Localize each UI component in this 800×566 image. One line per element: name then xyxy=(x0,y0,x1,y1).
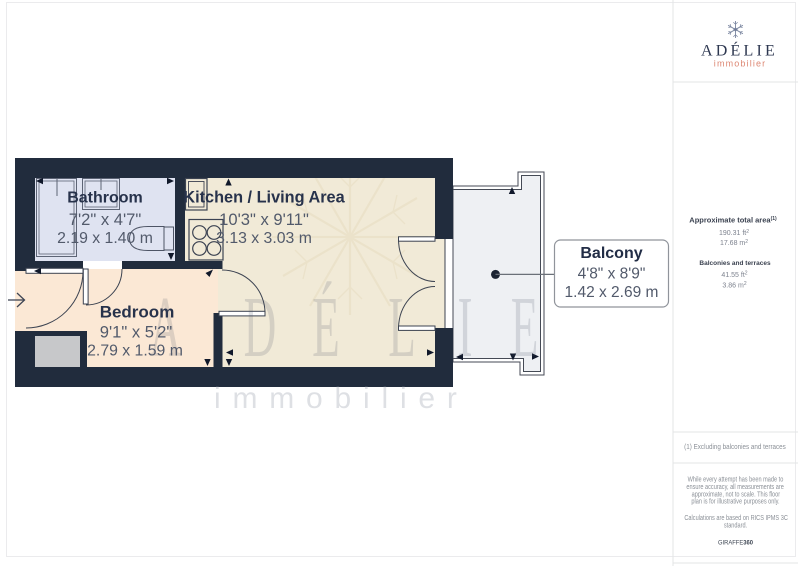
svg-text:Kitchen / Living Area: Kitchen / Living Area xyxy=(183,189,345,207)
svg-text:standard.: standard. xyxy=(724,522,748,530)
svg-text:41.55 ft2: 41.55 ft2 xyxy=(721,271,747,279)
svg-text:(1) Excluding balconies and te: (1) Excluding balconies and terraces xyxy=(684,444,786,451)
svg-text:3.86 m2: 3.86 m2 xyxy=(722,281,746,289)
svg-text:7'2" x 4'7": 7'2" x 4'7" xyxy=(69,210,142,229)
svg-text:E: E xyxy=(511,278,539,375)
svg-text:3.13 x 3.03 m: 3.13 x 3.03 m xyxy=(216,230,312,247)
svg-text:190.31 ft2: 190.31 ft2 xyxy=(719,229,749,237)
svg-text:I: I xyxy=(457,278,472,375)
svg-text:1.42 x 2.69 m: 1.42 x 2.69 m xyxy=(565,284,659,301)
svg-text:immobilier: immobilier xyxy=(214,382,469,415)
svg-text:É: É xyxy=(312,278,340,375)
svg-text:4'8" x 8'9": 4'8" x 8'9" xyxy=(578,266,646,283)
svg-text:D: D xyxy=(244,278,277,375)
svg-text:Balcony: Balcony xyxy=(580,245,642,262)
svg-text:L: L xyxy=(388,278,416,375)
svg-text:immobilier: immobilier xyxy=(714,59,767,69)
svg-text:plan is for illustrative purpo: plan is for illustrative purposes only. xyxy=(691,498,779,506)
svg-text:Bathroom: Bathroom xyxy=(67,190,143,207)
svg-text:A: A xyxy=(149,278,182,375)
svg-text:Balconies and terraces: Balconies and terraces xyxy=(699,260,771,267)
svg-text:2.19 x 1.40 m: 2.19 x 1.40 m xyxy=(57,230,153,247)
svg-text:10'3" x 9'11": 10'3" x 9'11" xyxy=(219,210,309,229)
svg-text:GIRAFFE360: GIRAFFE360 xyxy=(718,539,753,547)
svg-text:Approximate total area(1): Approximate total area(1) xyxy=(689,216,777,225)
svg-text:ADÉLIE: ADÉLIE xyxy=(701,41,778,60)
svg-text:17.68 m2: 17.68 m2 xyxy=(720,239,748,247)
